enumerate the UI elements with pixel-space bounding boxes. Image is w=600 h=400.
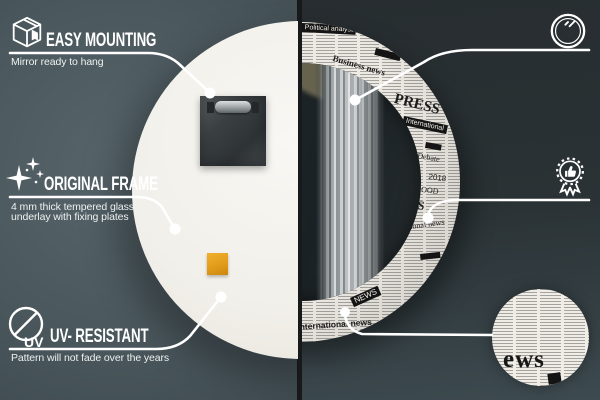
newsprint-word: 2018 xyxy=(428,173,447,183)
sparkles-icon xyxy=(6,155,44,197)
callout-description-line: underlay with fixing plates xyxy=(11,212,134,222)
round-mirror-icon xyxy=(549,12,587,50)
mount-notch xyxy=(252,102,259,113)
callout-description: Mirror ready to hang xyxy=(11,57,104,67)
newsprint-block xyxy=(425,142,442,151)
callout-title: ORIGINAL FRAME xyxy=(44,175,158,194)
callout-title: EASY MOUNTING xyxy=(46,31,156,50)
award-rosette-thumbs-up-icon xyxy=(551,155,589,199)
mount-notch xyxy=(207,102,214,113)
callout-title: UV- RESISTANT xyxy=(50,327,148,346)
pattern-detail-circle: ews xyxy=(492,289,589,386)
mounting-plate xyxy=(200,96,266,166)
newsprint-block xyxy=(547,372,561,385)
callout-description: Pattern will not fade over the years xyxy=(11,353,169,363)
package-box-icon xyxy=(8,14,46,52)
hanging-slot xyxy=(215,101,251,113)
newsprint-block xyxy=(374,48,401,61)
sticker-label xyxy=(207,253,228,275)
newsprint-word: International news xyxy=(302,318,372,332)
newsprint-word: Political analyst xyxy=(302,23,356,35)
newsprint-word: ews xyxy=(503,346,545,374)
newsprint-word: Debate xyxy=(417,152,441,164)
product-infographic: Political analystBusiness newsPRESSInter… xyxy=(0,0,600,400)
uv-icon-label: UV xyxy=(24,334,44,350)
newsprint-block xyxy=(420,252,441,260)
reflected-curtain xyxy=(315,63,385,301)
callout-description: 4 mm thick tempered glass underlay with … xyxy=(11,202,134,222)
uv-no-sun-icon: UV xyxy=(6,303,50,351)
